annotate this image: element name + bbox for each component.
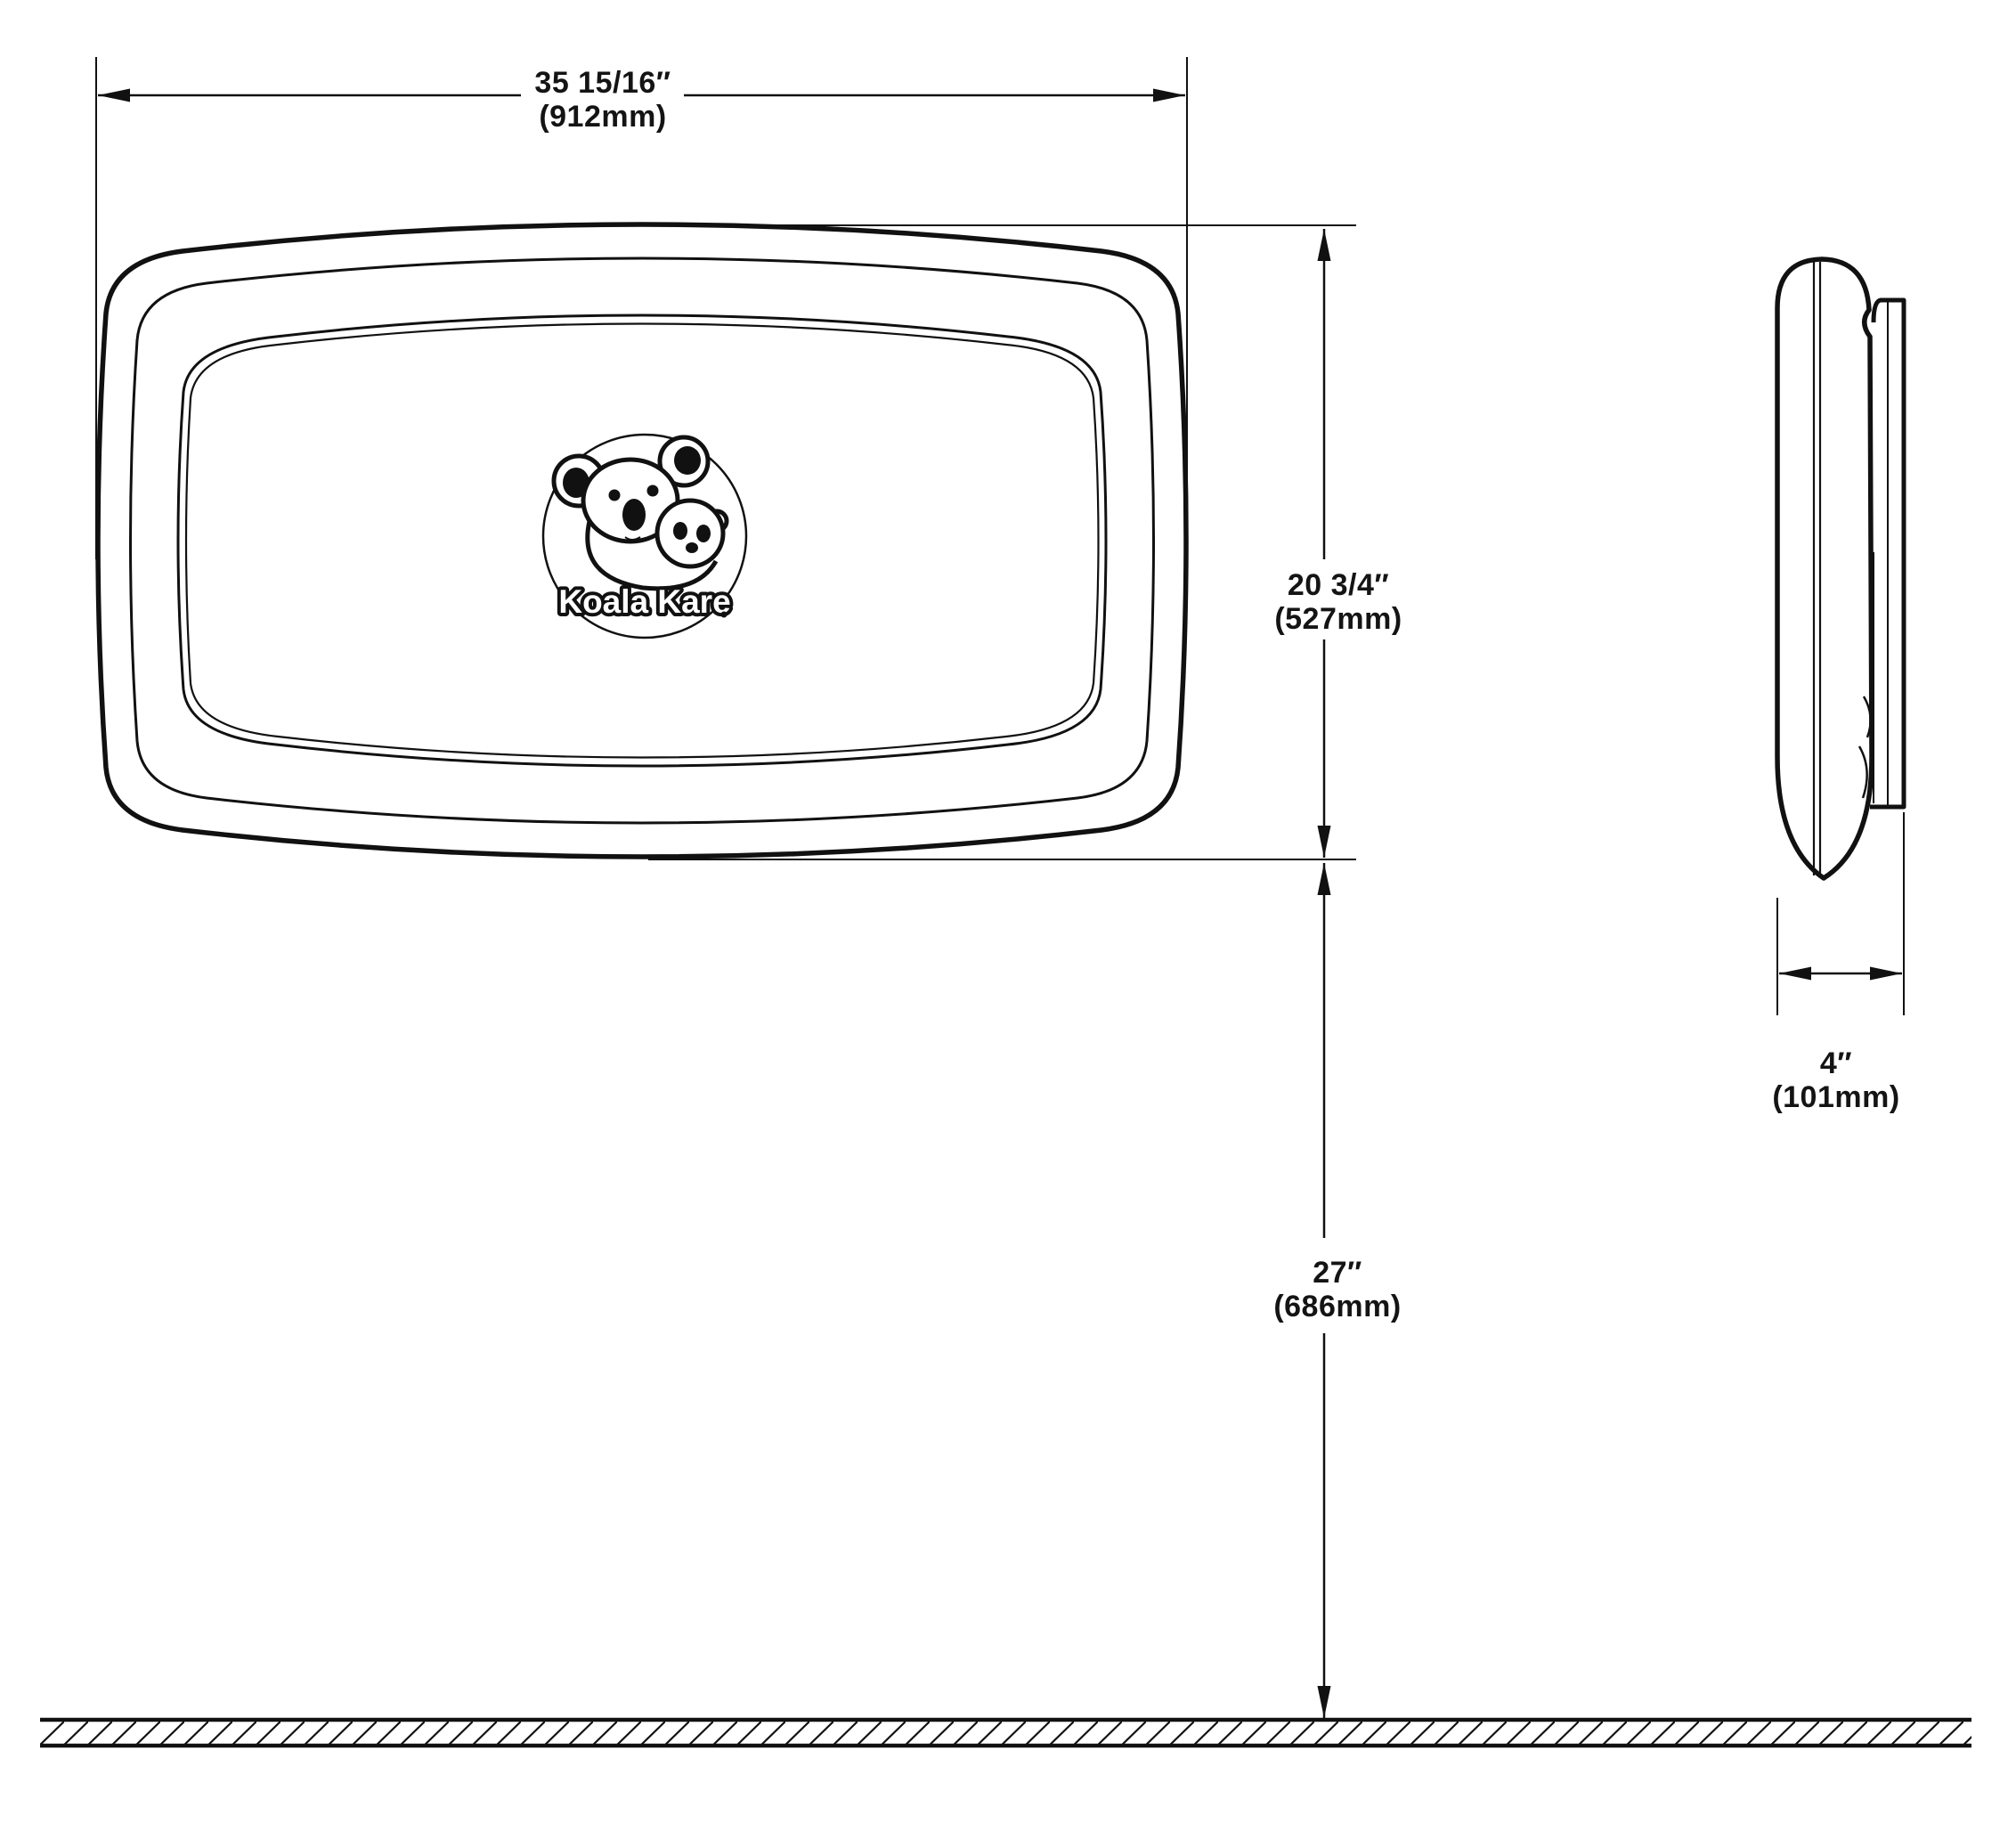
dim-width-inches: 35 15/16″ [534, 66, 671, 100]
dimension-drawing-canvas: Koala Kare 35 15/16″ (912mm) [0, 0, 2016, 1832]
baby-koala-eye-patch-right [696, 525, 711, 542]
dim-depth-mm: (101mm) [1772, 1080, 1899, 1114]
baby-koala-head [657, 501, 723, 566]
dim-depth: 4″ (101mm) [1772, 812, 1904, 1114]
arrowhead-up [1318, 863, 1331, 895]
dim-depth-inches: 4″ [1820, 1046, 1852, 1080]
arrowhead-right [1870, 967, 1902, 981]
koala-left-eye [609, 490, 621, 501]
baby-koala-nose [686, 542, 698, 553]
arrowhead-down [1318, 1686, 1331, 1718]
dim-floor-mm: (686mm) [1273, 1290, 1401, 1323]
side-hinge-arc-lower [1859, 746, 1867, 798]
registered-mark-dot [721, 612, 728, 618]
front-view: Koala Kare [98, 224, 1186, 857]
dim-height-mm: (527mm) [1274, 602, 1402, 636]
arrowhead-left [98, 89, 130, 102]
baby-koala-eye-patch-left [673, 522, 687, 540]
technical-drawing: Koala Kare 35 15/16″ (912mm) [0, 0, 2016, 1832]
koala-nose [622, 499, 646, 531]
koala-right-eye [647, 485, 659, 497]
koala-kare-logo: Koala Kare [543, 435, 746, 638]
arrowhead-down [1318, 826, 1331, 858]
floor-line [40, 1720, 1971, 1746]
arrowhead-left [1779, 967, 1811, 981]
arrowhead-right [1153, 89, 1185, 102]
dim-floor-clearance: 27″ (686mm) [1273, 863, 1401, 1718]
arrowhead-up [1318, 229, 1331, 261]
logo-wordmark: Koala Kare [558, 583, 730, 620]
dim-width-mm: (912mm) [539, 100, 666, 134]
dim-height-inches: 20 3/4″ [1288, 568, 1389, 602]
floor-hatch-strip [40, 1722, 1971, 1745]
side-view [1777, 259, 1904, 878]
koala-right-ear-patch [674, 446, 701, 475]
dim-floor-inches: 27″ [1313, 1256, 1362, 1290]
side-body-outline [1777, 259, 1872, 878]
